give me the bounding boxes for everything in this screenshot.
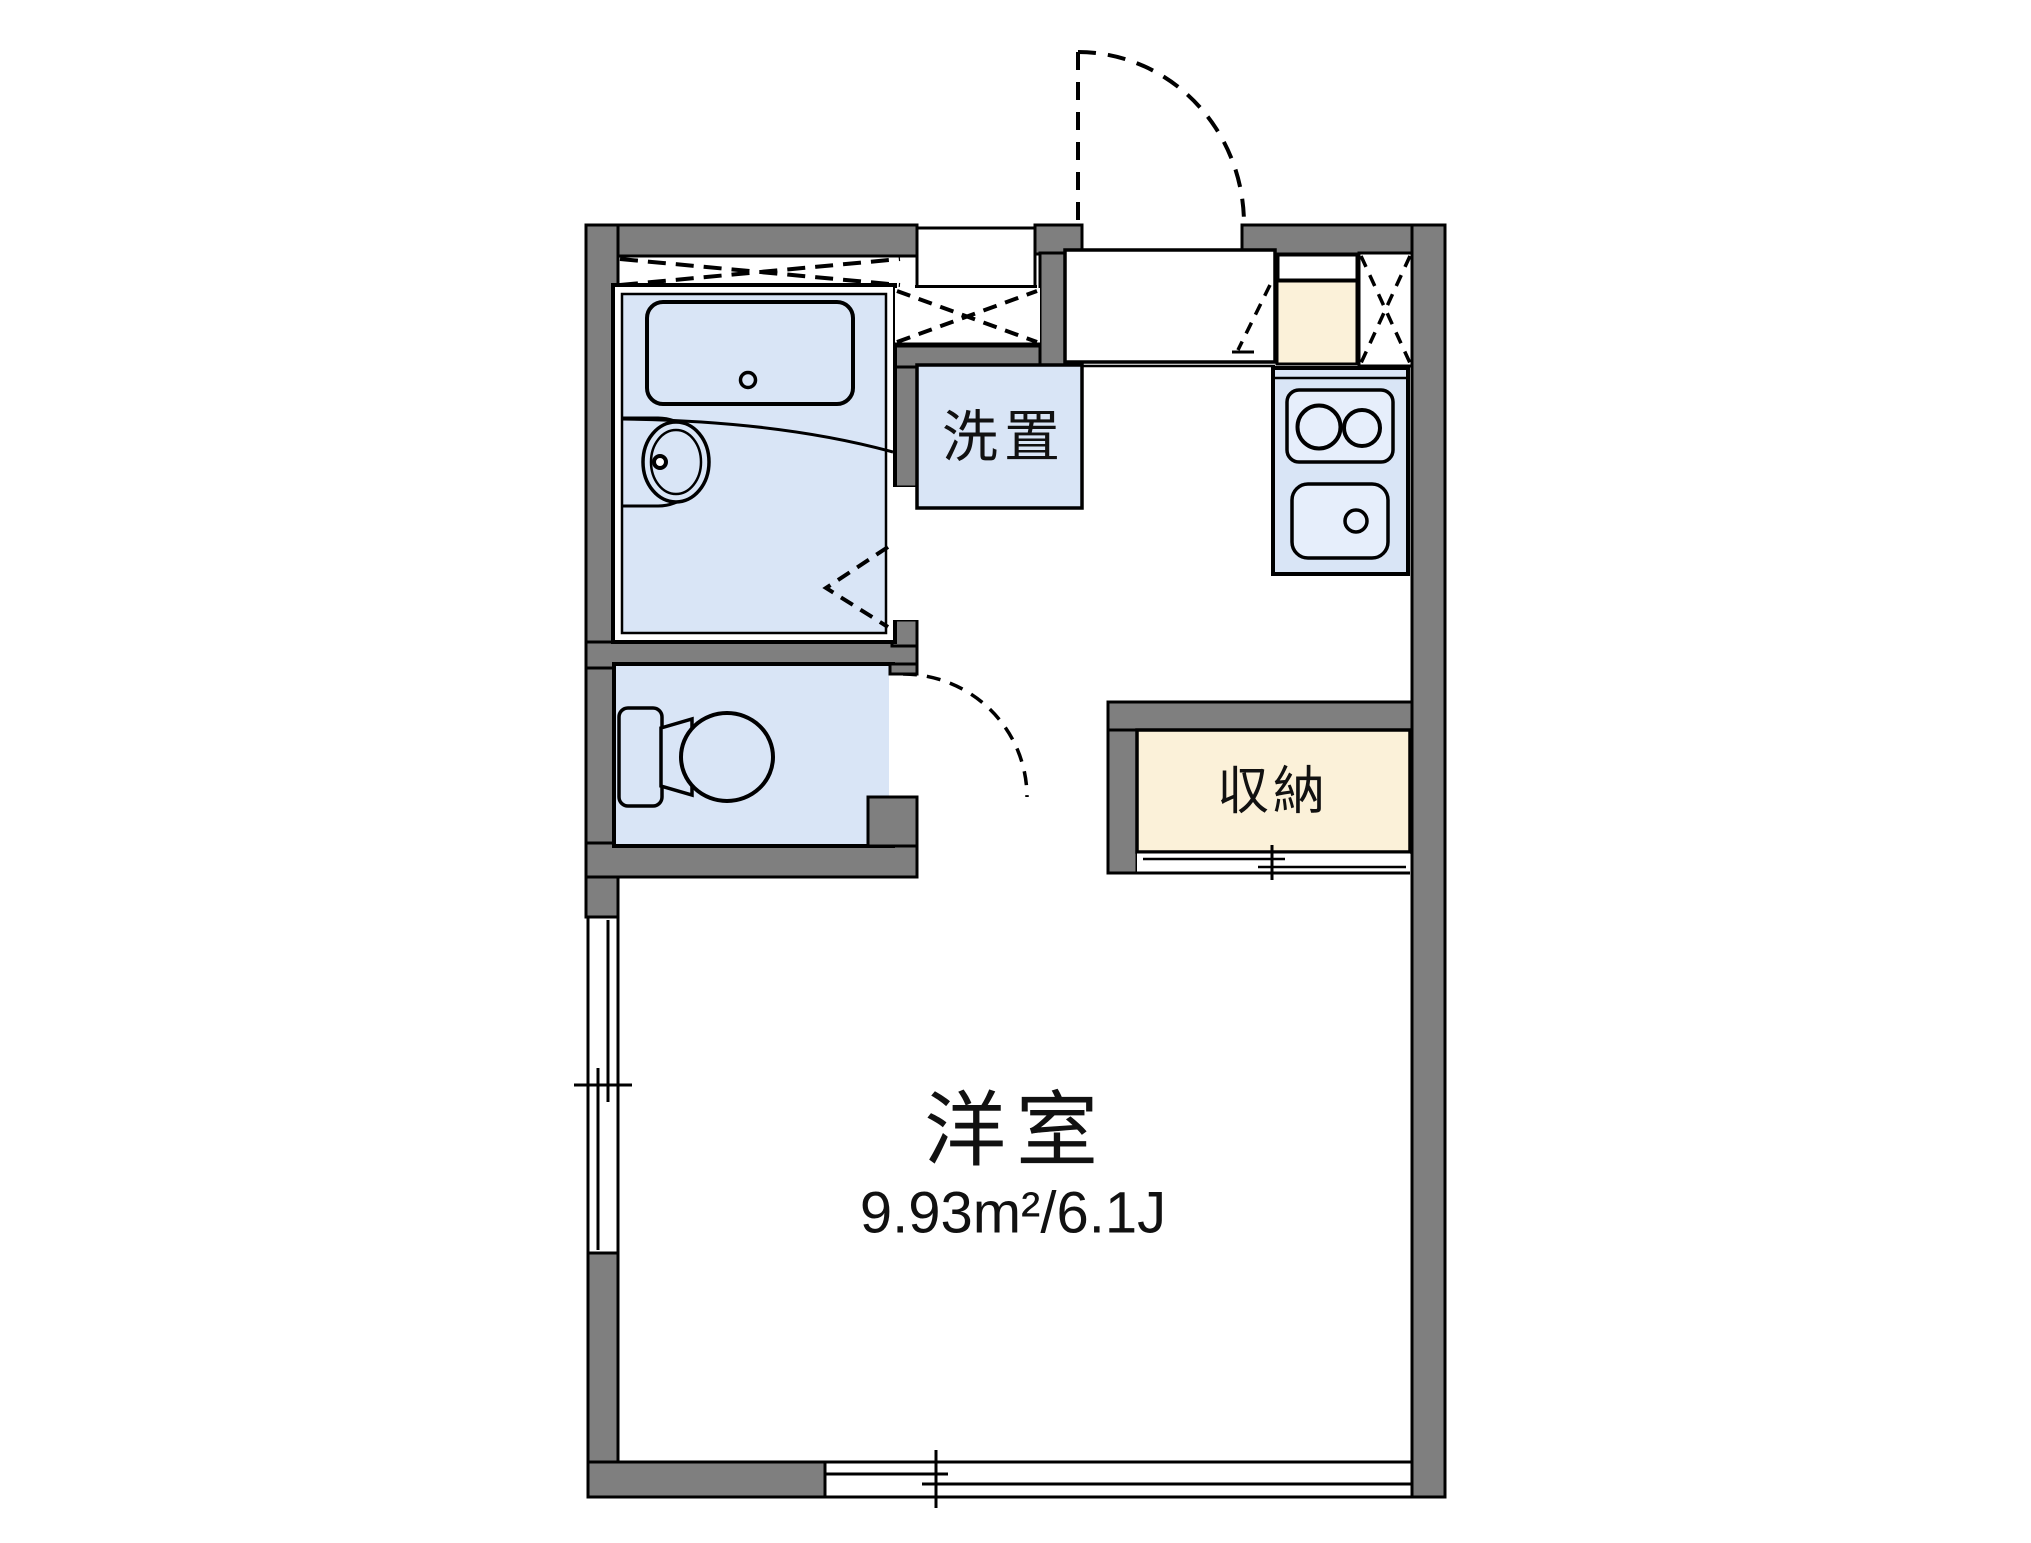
- vent-box-body: [917, 228, 1035, 287]
- bottom-window-frame: [825, 1462, 1412, 1497]
- bathtub-drain: [741, 373, 756, 388]
- left-window: [574, 917, 632, 1253]
- stove-burner-right: [1344, 410, 1380, 446]
- fridge-alcove-top-box: [1278, 255, 1357, 280]
- genkan: [1065, 250, 1275, 366]
- toilet-room: [614, 664, 1027, 846]
- wall-right: [1412, 225, 1445, 1497]
- toilet-bowl: [681, 713, 773, 801]
- wall-left-lower: [588, 1253, 618, 1497]
- kitchen-unit: [1273, 368, 1408, 574]
- storage-closet: 収納: [1137, 730, 1410, 880]
- wall-toilet-right-stub: [890, 664, 917, 674]
- storage-label: 収納: [1217, 763, 1329, 821]
- genkan-floor: [1065, 250, 1275, 362]
- washer-space-label: 洗置: [942, 406, 1066, 469]
- wall-toilet-notch: [868, 797, 917, 846]
- wall-storage-top: [1108, 702, 1412, 730]
- fridge-alcove-space: [1277, 281, 1357, 364]
- wall-toilet-bottom: [586, 843, 917, 877]
- wall-top-left: [586, 225, 917, 256]
- kitchen-sink: [1292, 484, 1388, 558]
- vent-box: [915, 228, 1037, 288]
- toilet-tank: [619, 708, 662, 806]
- washbasin-faucet: [654, 456, 666, 468]
- entry-closet-area: [1359, 253, 1412, 366]
- toilet-door-arc: [903, 674, 1027, 797]
- shelf-hatch-box: [893, 288, 1040, 345]
- main-room: 洋室 9.93m²/6.1J: [860, 1086, 1166, 1246]
- fridge-alcove: [1277, 255, 1357, 364]
- main-room-area: 9.93m²/6.1J: [860, 1181, 1166, 1246]
- floor-plan-drawing: 洗置 収納: [0, 0, 2031, 1543]
- entry-closet: [1359, 253, 1412, 366]
- shelf-hatch-strip: [620, 259, 900, 285]
- wall-storage-left: [1108, 730, 1137, 873]
- stove-burner-left: [1298, 406, 1341, 449]
- bottom-window: [825, 1450, 1412, 1508]
- entrance-door-arc: [1078, 52, 1244, 224]
- floor-plan: 洗置 収納: [0, 0, 2031, 1543]
- toilet-door-opening: [889, 674, 919, 797]
- bathroom: [613, 285, 919, 642]
- washer-space: 洗置: [917, 365, 1082, 508]
- wall-bottom-left: [588, 1462, 825, 1497]
- kitchen-sink-drain: [1345, 510, 1367, 532]
- main-room-name: 洋室: [924, 1086, 1108, 1177]
- entrance-door: [1078, 52, 1244, 224]
- bathroom-door-opening: [889, 487, 919, 620]
